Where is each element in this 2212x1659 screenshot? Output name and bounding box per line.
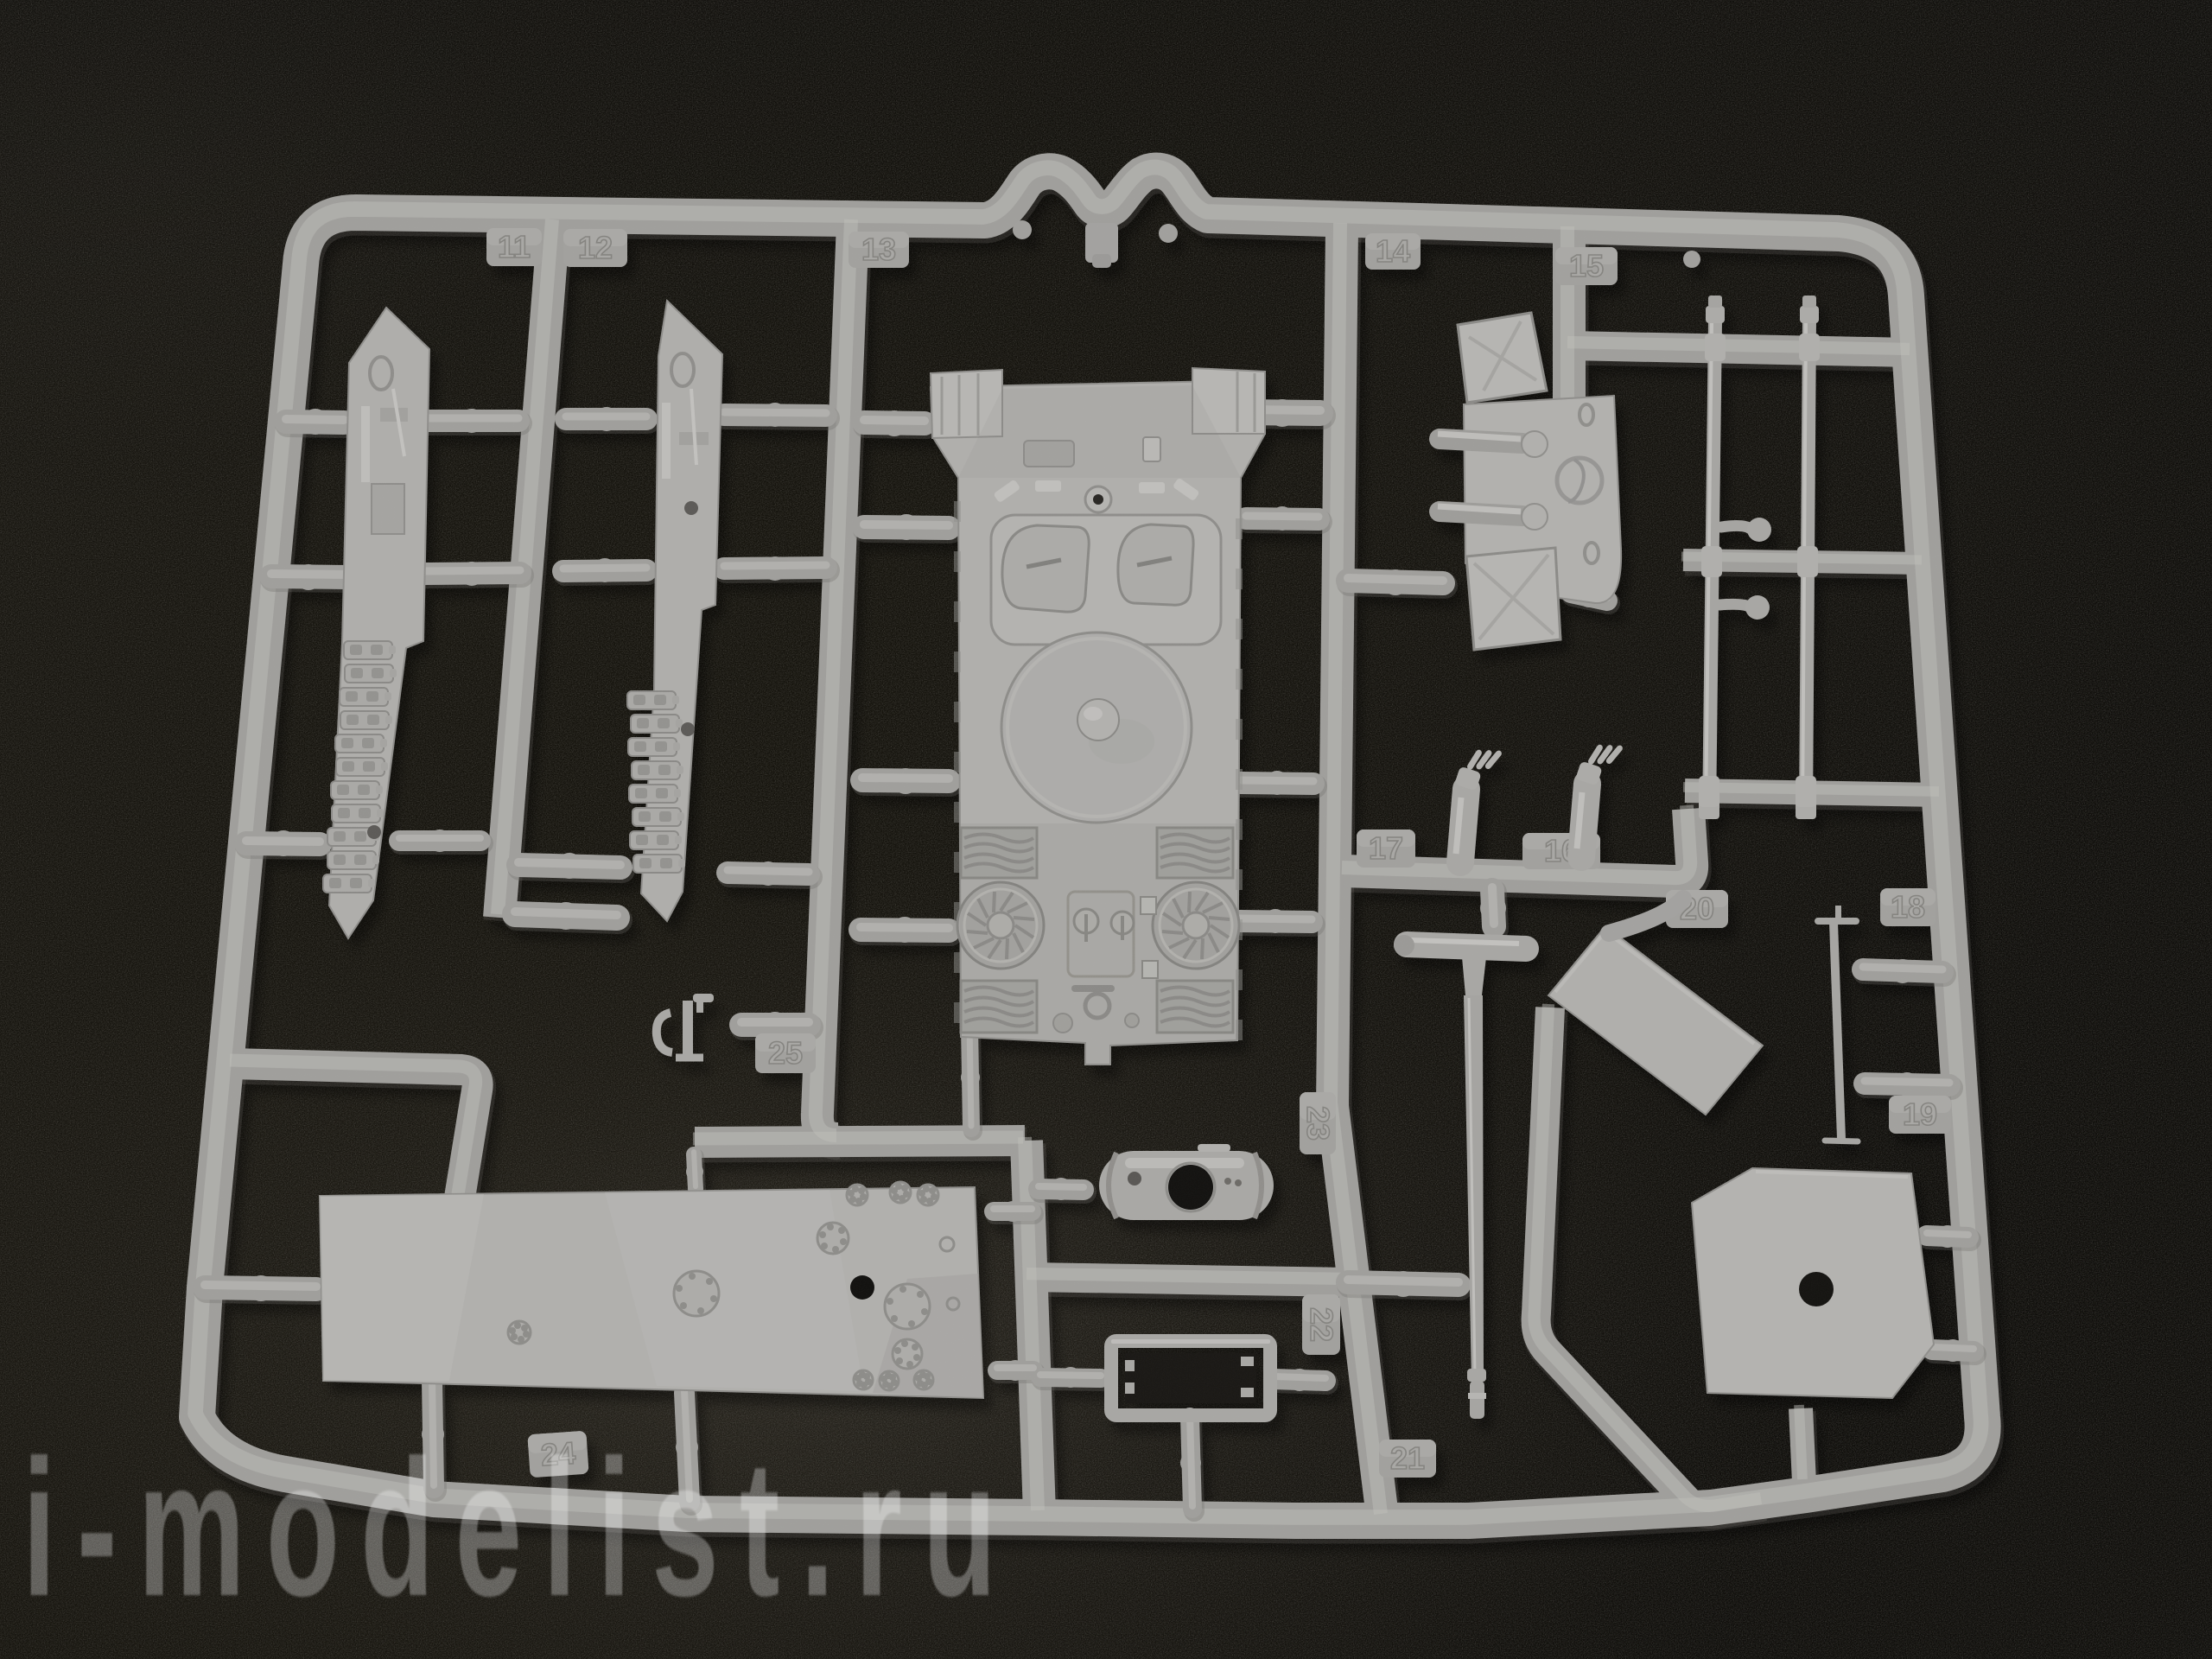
svg-text:i-modelist.ru: i-modelist.ru — [22, 1420, 1017, 1637]
